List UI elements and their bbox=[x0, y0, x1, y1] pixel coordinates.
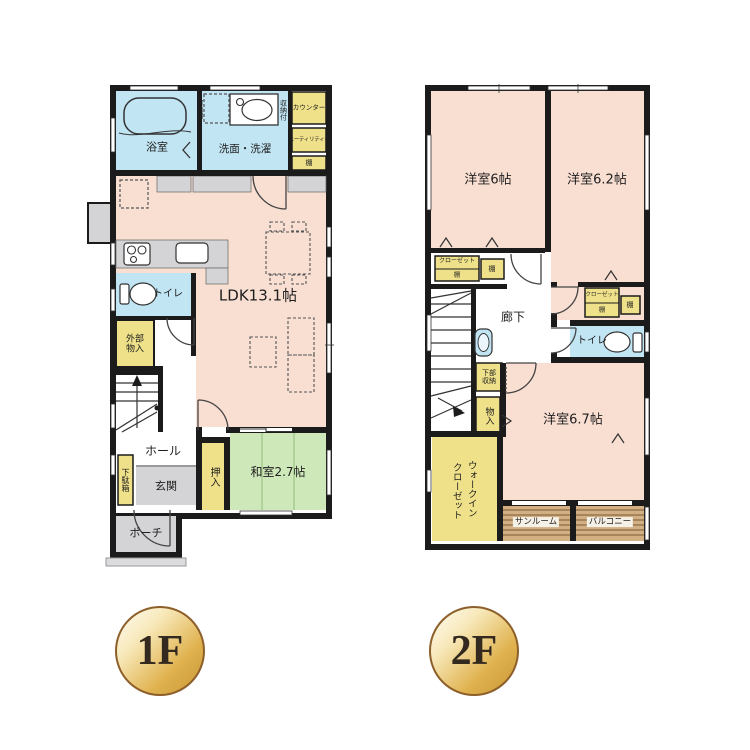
room-label-entrance: 玄関 bbox=[155, 481, 177, 494]
floor1-badge: 1F bbox=[115, 606, 205, 696]
label-closet-a-shelf: 棚 bbox=[454, 271, 461, 278]
floor2-badge-text: 2F bbox=[451, 627, 498, 675]
rooms-2f bbox=[431, 91, 644, 541]
room-label-ldk: LDK13.1帖 bbox=[219, 287, 297, 304]
label-under-storage: 下部収納 bbox=[481, 369, 497, 385]
entrance-step-line bbox=[136, 465, 196, 467]
washbasin-icon bbox=[230, 94, 278, 125]
label-closet-b: クローゼット bbox=[585, 292, 618, 298]
label-oshiire: 押入 bbox=[208, 467, 218, 487]
room-label-toilet-1f: トイレ bbox=[153, 288, 183, 300]
room-label-bath: 浴室 bbox=[146, 142, 168, 155]
floor1-plan bbox=[88, 86, 334, 566]
floor1-badge-text: 1F bbox=[137, 627, 184, 675]
room-label-sunroom: サンルーム bbox=[513, 518, 559, 528]
label-shelf-box-a: 棚 bbox=[489, 265, 496, 273]
exterior-alcove bbox=[88, 203, 113, 243]
floorplan-canvas: 浴室 洗面・洗濯 可動棚 収納付 カウンター ユーティリティー 棚 LDK13.… bbox=[0, 0, 750, 750]
deck-door-gap2 bbox=[578, 501, 632, 505]
toilet-icon-1f bbox=[120, 283, 156, 305]
toilet-icon-2f bbox=[604, 332, 642, 352]
kitchen-sink-icon bbox=[176, 243, 208, 263]
label-closet-b-shelf: 棚 bbox=[599, 306, 606, 313]
label-storage: 物入 bbox=[484, 407, 493, 425]
room-label-japanese-room: 和室2.7帖 bbox=[250, 466, 305, 480]
label-counter: カウンター bbox=[293, 104, 326, 111]
floor2-badge: 2F bbox=[429, 606, 519, 696]
room-label-porch: ポーチ bbox=[130, 528, 163, 541]
label-wic-line2: クローゼット bbox=[451, 463, 461, 520]
room-label-room6: 洋室6帖 bbox=[464, 174, 511, 189]
floorplan-graphics bbox=[0, 0, 750, 750]
label-movable-shelf: 可動棚 bbox=[196, 99, 203, 119]
room-label-washroom: 洗面・洗濯 bbox=[219, 143, 272, 155]
porch-step bbox=[106, 558, 186, 566]
label-shelf-box-b: 棚 bbox=[627, 301, 634, 309]
room-label-hallway: 廊下 bbox=[501, 311, 525, 325]
hall-sink-icon bbox=[475, 329, 492, 356]
room-label-toilet-2f: トイレ bbox=[577, 335, 607, 347]
label-shelf-1f: 棚 bbox=[306, 159, 313, 167]
deck-door-gap bbox=[512, 501, 566, 505]
label-shoebox: 下駄箱 bbox=[121, 468, 129, 492]
room-label-balcony: バルコニー bbox=[587, 518, 633, 528]
room-label-room6-7: 洋室6.7帖 bbox=[543, 414, 603, 429]
room-label-hall: ホール bbox=[145, 445, 181, 459]
label-with-storage: 収納付 bbox=[280, 100, 287, 121]
room-label-room6-2: 洋室6.2帖 bbox=[567, 174, 627, 189]
label-exterior-storage: 外部物入 bbox=[124, 335, 146, 356]
label-wic-line1: ウォークイン bbox=[466, 461, 476, 518]
label-utility: ユーティリティー bbox=[289, 137, 330, 143]
stove-icon bbox=[124, 243, 150, 265]
label-closet-a: クローゼット bbox=[439, 259, 475, 266]
